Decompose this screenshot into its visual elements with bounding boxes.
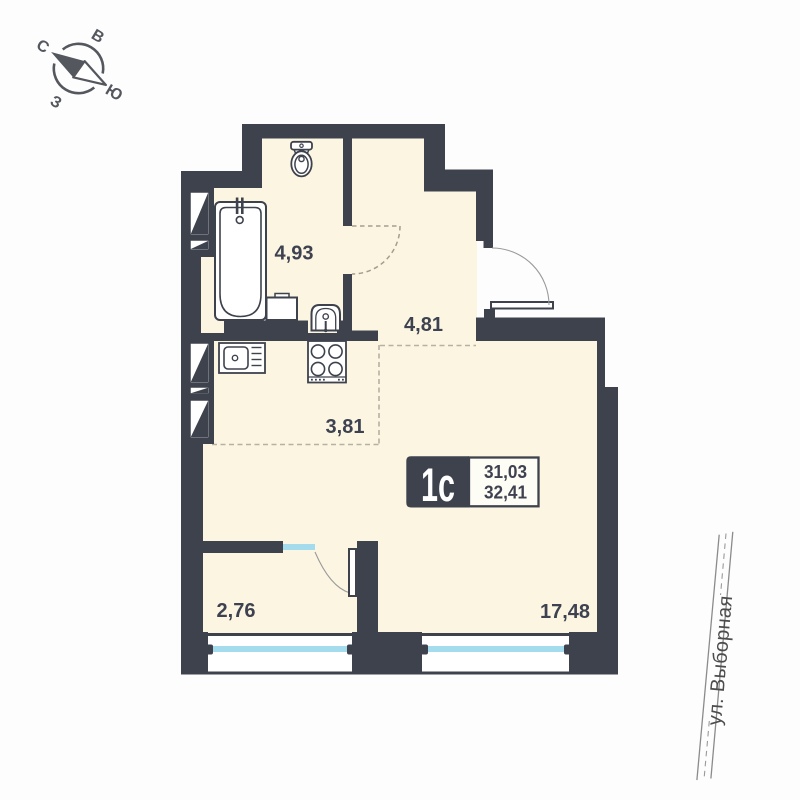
svg-text:17,48: 17,48: [540, 601, 590, 623]
svg-text:31,03: 31,03: [484, 461, 527, 482]
svg-text:2,76: 2,76: [217, 600, 256, 622]
svg-text:4,81: 4,81: [404, 314, 443, 336]
svg-text:1с: 1с: [421, 459, 455, 511]
svg-text:32,41: 32,41: [484, 482, 527, 503]
svg-text:4,93: 4,93: [275, 243, 314, 265]
svg-text:3,81: 3,81: [326, 416, 365, 438]
